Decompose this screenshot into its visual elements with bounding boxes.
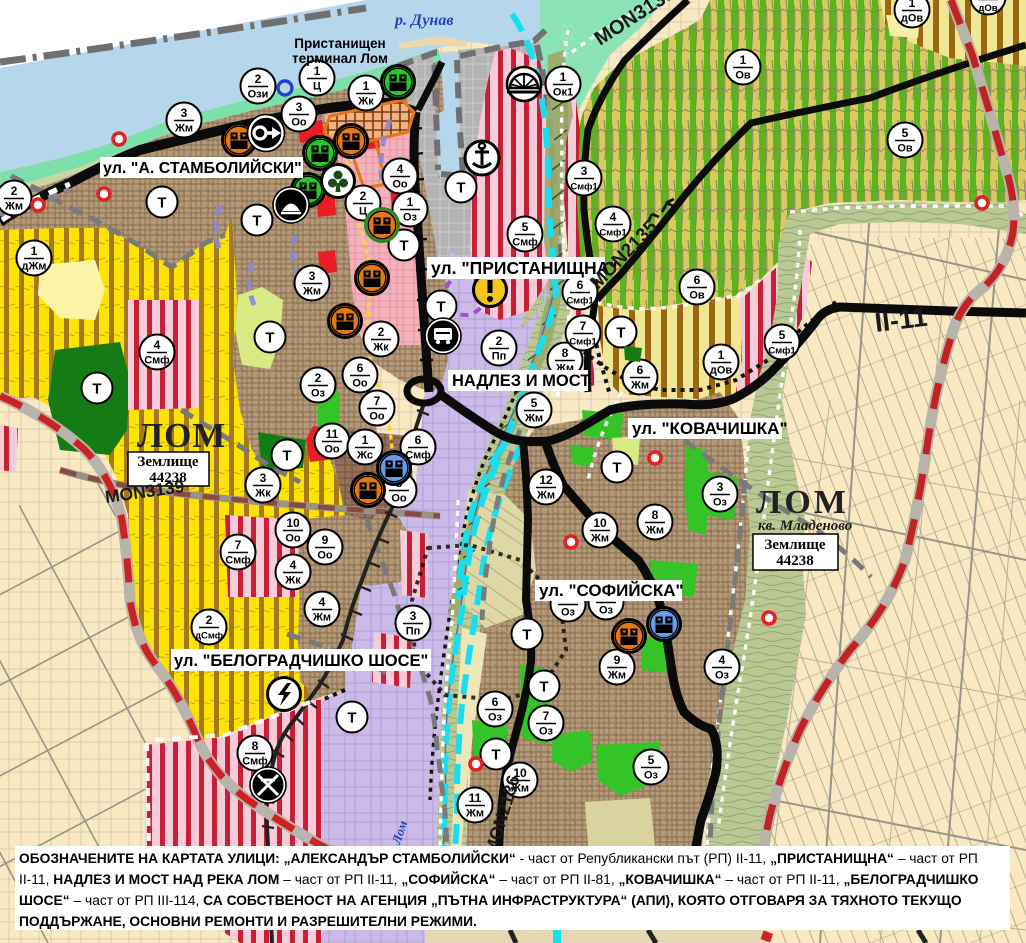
svg-text:3: 3 xyxy=(309,269,316,283)
svg-text:Смф: Смф xyxy=(225,555,251,567)
svg-text:1: 1 xyxy=(407,195,414,209)
svg-text:Т: Т xyxy=(456,180,465,197)
svg-text:Ц: Ц xyxy=(359,206,367,218)
svg-text:1: 1 xyxy=(560,70,567,84)
svg-text:Т: Т xyxy=(616,325,625,342)
svg-text:2: 2 xyxy=(360,189,367,203)
svg-text:ОБОЗНАЧЕНИТЕ НА КАРТАТА УЛИЦИ:: ОБОЗНАЧЕНИТЕ НА КАРТАТА УЛИЦИ: „АЛЕКСАНД… xyxy=(19,849,978,866)
svg-text:6: 6 xyxy=(637,363,644,377)
svg-text:Т: Т xyxy=(539,679,548,696)
svg-text:7: 7 xyxy=(235,538,242,552)
svg-text:5: 5 xyxy=(522,220,529,234)
svg-text:Смф: Смф xyxy=(242,756,268,768)
svg-text:5: 5 xyxy=(779,328,786,342)
svg-text:ПОДДЪРЖАНЕ, ОСНОВНИ РЕМОНТИ И: ПОДДЪРЖАНЕ, ОСНОВНИ РЕМОНТИ И РАЗРЕШИТЕЛ… xyxy=(19,914,477,929)
svg-text:Оо: Оо xyxy=(317,550,333,562)
svg-text:9: 9 xyxy=(322,533,329,547)
svg-text:Т: Т xyxy=(399,238,408,255)
svg-text:Смф1: Смф1 xyxy=(768,346,796,357)
svg-text:3: 3 xyxy=(581,164,588,178)
svg-text:Оз: Оз xyxy=(715,670,730,682)
svg-text:3: 3 xyxy=(260,471,267,485)
svg-text:ул. "КОВАЧИШКА": ул. "КОВАЧИШКА" xyxy=(632,419,788,438)
svg-text:Ц: Ц xyxy=(313,81,321,93)
svg-text:Пристанищен: Пристанищен xyxy=(294,36,385,51)
svg-text:Т: Т xyxy=(252,213,261,230)
svg-text:Жм: Жм xyxy=(630,380,649,392)
svg-text:1: 1 xyxy=(740,53,747,67)
svg-text:Жм: Жм xyxy=(465,808,484,820)
svg-text:Оо: Оо xyxy=(291,117,307,129)
svg-text:Землище: Землище xyxy=(137,454,199,470)
svg-text:Пп: Пп xyxy=(492,351,507,363)
svg-text:Т: Т xyxy=(491,747,500,764)
svg-text:Оз: Оз xyxy=(644,770,659,782)
svg-text:Жк: Жк xyxy=(284,575,301,587)
svg-text:НАДЛЕЗ И МОСТ: НАДЛЕЗ И МОСТ xyxy=(452,372,590,390)
svg-text:дОв: дОв xyxy=(978,3,997,14)
svg-text:4: 4 xyxy=(154,338,161,352)
svg-text:Смф1: Смф1 xyxy=(599,228,627,239)
svg-text:1: 1 xyxy=(363,79,370,93)
svg-text:7: 7 xyxy=(374,394,381,408)
svg-text:Смф: Смф xyxy=(512,237,538,249)
svg-text:5: 5 xyxy=(902,126,909,140)
svg-text:Жм: Жм xyxy=(607,670,626,682)
svg-text:3: 3 xyxy=(717,480,724,494)
svg-text:Т: Т xyxy=(522,627,531,644)
svg-text:Оз: Оз xyxy=(488,712,503,724)
svg-text:Оо: Оо xyxy=(352,378,368,390)
svg-text:Жм: Жм xyxy=(590,533,609,545)
svg-text:Т: Т xyxy=(92,381,101,398)
svg-text:Жм: Жм xyxy=(4,201,23,213)
svg-text:Оз: Оз xyxy=(403,212,418,224)
svg-text:10: 10 xyxy=(593,516,607,530)
svg-text:ЛОМ: ЛОМ xyxy=(756,484,849,521)
svg-text:6: 6 xyxy=(577,278,584,292)
svg-text:4: 4 xyxy=(319,595,326,609)
svg-text:Жм: Жм xyxy=(536,490,555,502)
svg-text:дОв: дОв xyxy=(710,365,733,377)
svg-text:II-11: II-11 xyxy=(873,302,929,338)
svg-text:Т: Т xyxy=(612,460,621,477)
svg-text:ЛОМ: ЛОМ xyxy=(137,416,226,455)
svg-text:Ов: Ов xyxy=(897,143,913,155)
svg-text:дЖм: дЖм xyxy=(21,261,46,273)
svg-text:Жк: Жк xyxy=(372,342,389,354)
svg-text:Т: Т xyxy=(157,195,166,212)
svg-text:4: 4 xyxy=(719,653,726,667)
svg-text:Смф1: Смф1 xyxy=(569,337,597,348)
svg-text:10: 10 xyxy=(286,516,300,530)
svg-text:р. Дунав: р. Дунав xyxy=(393,12,453,29)
svg-text:11: 11 xyxy=(469,791,482,805)
svg-text:3: 3 xyxy=(410,609,417,623)
svg-text:ул. "А. СТАМБОЛИЙСКИ": ул. "А. СТАМБОЛИЙСКИ" xyxy=(103,158,302,177)
svg-text:11: 11 xyxy=(326,427,339,441)
svg-text:5: 5 xyxy=(531,396,538,410)
svg-text:6: 6 xyxy=(415,433,422,447)
svg-text:Смф1: Смф1 xyxy=(570,182,598,193)
svg-text:6: 6 xyxy=(694,273,701,287)
svg-text:8: 8 xyxy=(562,346,569,360)
svg-text:Пп: Пп xyxy=(406,626,421,638)
svg-text:Оо: Оо xyxy=(369,411,385,423)
svg-text:Т: Т xyxy=(347,710,356,727)
svg-text:7: 7 xyxy=(543,709,550,723)
svg-text:Оз: Оз xyxy=(311,388,326,400)
svg-text:Ози: Ози xyxy=(248,89,269,101)
svg-text:Жк: Жк xyxy=(254,488,271,500)
svg-text:4: 4 xyxy=(610,210,617,224)
svg-text:Жм: Жм xyxy=(302,286,321,298)
svg-text:Жм: Жм xyxy=(524,413,543,425)
svg-text:Смф1: Смф1 xyxy=(566,296,594,307)
svg-text:Смф: Смф xyxy=(144,355,170,367)
svg-text:7: 7 xyxy=(580,319,587,333)
svg-text:8: 8 xyxy=(652,508,659,522)
svg-text:6: 6 xyxy=(357,361,364,375)
svg-text:6: 6 xyxy=(492,695,499,709)
svg-text:Т: Т xyxy=(265,330,274,347)
svg-text:1: 1 xyxy=(718,348,725,362)
svg-text:2: 2 xyxy=(11,184,18,198)
svg-text:5: 5 xyxy=(648,753,655,767)
svg-text:Оз: Оз xyxy=(561,607,576,619)
svg-text:Оо: Оо xyxy=(391,493,407,505)
svg-text:Ов: Ов xyxy=(689,290,705,302)
svg-text:Т: Т xyxy=(436,299,445,316)
svg-text:2: 2 xyxy=(206,613,213,627)
svg-text:Жс: Жс xyxy=(356,450,373,462)
svg-text:дСмф: дСмф xyxy=(195,631,223,642)
svg-text:ул. "БЕЛОГРАДЧИШКО ШОСЕ": ул. "БЕЛОГРАДЧИШКО ШОСЕ" xyxy=(174,652,428,670)
svg-text:II-11, НАДЛЕЗ И МОСТ НАД РЕКА: II-11, НАДЛЕЗ И МОСТ НАД РЕКА ЛОМ – част… xyxy=(19,870,979,887)
svg-text:Землище: Землище xyxy=(764,537,826,553)
svg-text:Оз: Оз xyxy=(599,605,614,617)
svg-text:терминал Лом: терминал Лом xyxy=(292,51,388,66)
svg-text:2: 2 xyxy=(496,334,503,348)
svg-text:Оо: Оо xyxy=(324,444,340,456)
svg-text:дОв: дОв xyxy=(901,13,924,25)
svg-text:Оз: Оз xyxy=(539,726,554,738)
svg-text:Ов: Ов xyxy=(735,70,751,82)
svg-text:Жм: Жм xyxy=(645,525,664,537)
svg-text:Ок1: Ок1 xyxy=(553,87,573,99)
svg-text:2: 2 xyxy=(378,325,385,339)
svg-text:Жм: Жм xyxy=(312,612,331,624)
svg-text:9: 9 xyxy=(614,653,621,667)
svg-text:4: 4 xyxy=(290,558,297,572)
svg-text:3: 3 xyxy=(296,100,303,114)
svg-text:1: 1 xyxy=(909,0,916,10)
svg-text:3: 3 xyxy=(181,106,188,120)
svg-text:12: 12 xyxy=(539,473,553,487)
svg-text:1: 1 xyxy=(31,244,38,258)
svg-text:Оо: Оо xyxy=(285,533,301,545)
svg-text:4: 4 xyxy=(397,162,404,176)
svg-text:Оо: Оо xyxy=(392,179,408,191)
svg-text:Жм: Жм xyxy=(174,123,193,135)
svg-text:Жк: Жк xyxy=(357,96,374,108)
svg-text:Оз: Оз xyxy=(713,497,728,509)
svg-text:44238: 44238 xyxy=(776,553,814,569)
svg-text:1: 1 xyxy=(314,64,321,78)
svg-text:Т: Т xyxy=(282,448,291,465)
svg-text:ул. "СОФИЙСКА": ул. "СОФИЙСКА" xyxy=(539,581,684,600)
svg-text:2: 2 xyxy=(315,371,322,385)
svg-text:кв. Младеново: кв. Младеново xyxy=(758,518,852,534)
svg-text:8: 8 xyxy=(252,739,259,753)
svg-text:2: 2 xyxy=(255,72,262,86)
svg-text:1: 1 xyxy=(362,433,369,447)
svg-text:ШОСЕ“ – част от РП III-114, СА: ШОСЕ“ – част от РП III-114, СА СОБСТВЕНО… xyxy=(19,893,962,908)
